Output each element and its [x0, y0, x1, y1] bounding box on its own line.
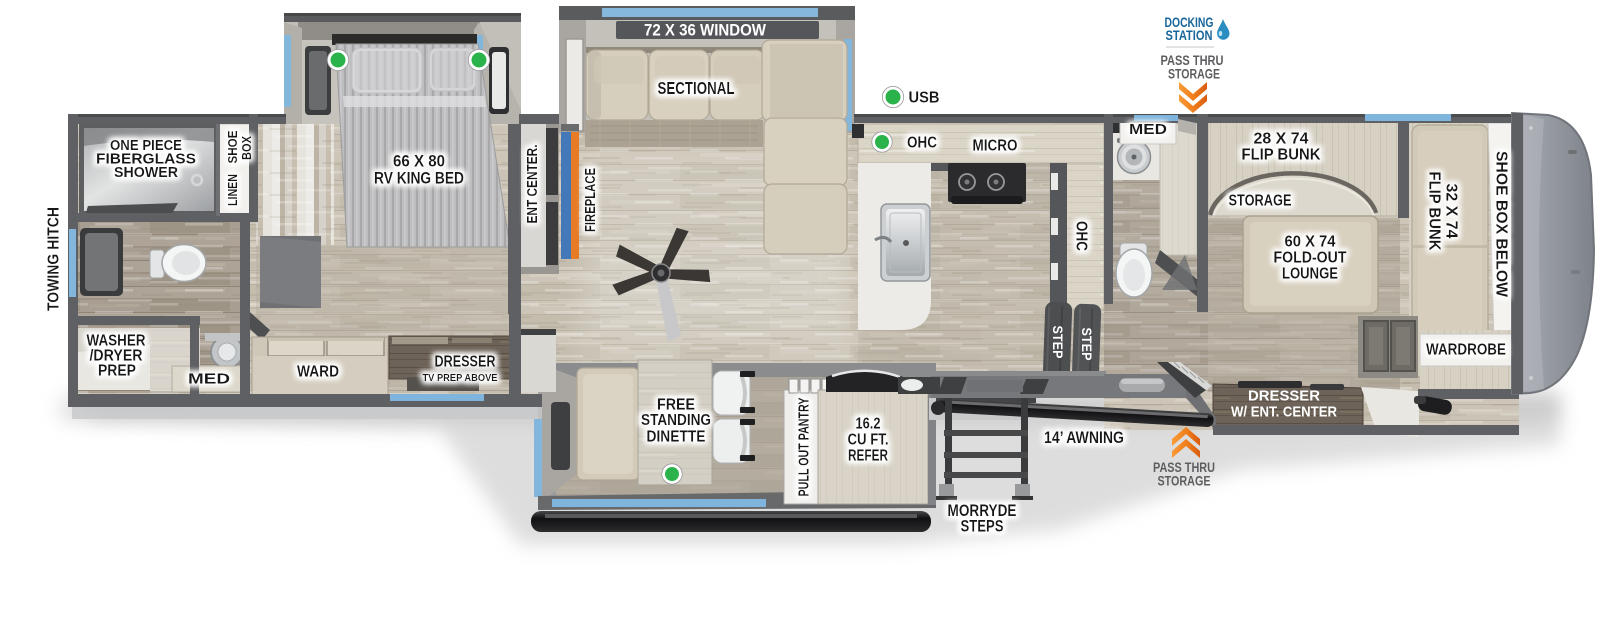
svg-text:STEP: STEP — [1050, 326, 1066, 359]
svg-text:SECTIONAL: SECTIONAL — [658, 78, 735, 98]
svg-text:DINETTE: DINETTE — [647, 429, 706, 446]
svg-text:DRESSER: DRESSER — [435, 354, 496, 371]
svg-text:PULL OUT PANTRY: PULL OUT PANTRY — [796, 398, 813, 497]
svg-text:60 X 74: 60 X 74 — [1285, 234, 1336, 251]
svg-text:72 X 36 WINDOW: 72 X 36 WINDOW — [644, 21, 767, 40]
svg-text:OHC: OHC — [1073, 221, 1090, 251]
svg-text:USB: USB — [909, 90, 940, 107]
svg-text:MED: MED — [1129, 122, 1167, 138]
svg-text:FLIP BUNK: FLIP BUNK — [1426, 172, 1443, 251]
svg-text:OHC: OHC — [907, 135, 937, 152]
svg-text:FREE: FREE — [657, 397, 695, 414]
svg-text:16.2: 16.2 — [856, 416, 881, 433]
svg-text:W/ ENT. CENTER: W/ ENT. CENTER — [1231, 404, 1337, 421]
svg-text:MED: MED — [188, 371, 230, 388]
svg-text:STEP: STEP — [1079, 328, 1095, 361]
svg-text:FLIP BUNK: FLIP BUNK — [1242, 147, 1321, 164]
svg-text:FIREPLACE: FIREPLACE — [583, 168, 599, 232]
svg-text:LOUNGE: LOUNGE — [1282, 266, 1338, 283]
svg-text:SHOE BOX BELOW: SHOE BOX BELOW — [1493, 151, 1510, 297]
svg-text:PREP: PREP — [98, 363, 136, 380]
svg-text:WARDROBE: WARDROBE — [1426, 342, 1506, 359]
svg-text:BOX: BOX — [240, 135, 254, 160]
svg-text:ENT CENTER.: ENT CENTER. — [525, 145, 541, 224]
svg-text:DRESSER: DRESSER — [1248, 388, 1320, 405]
svg-text:STATION: STATION — [1166, 28, 1213, 43]
svg-text:SHOWER: SHOWER — [114, 165, 179, 181]
svg-text:CU FT.: CU FT. — [848, 432, 889, 449]
svg-text:WARD: WARD — [297, 364, 339, 381]
svg-text:MICRO: MICRO — [973, 138, 1018, 155]
svg-text:STORAGE: STORAGE — [1229, 193, 1292, 210]
svg-text:STANDING: STANDING — [641, 412, 711, 429]
svg-text:STEPS: STEPS — [961, 518, 1004, 536]
svg-text:32 X 74: 32 X 74 — [1443, 184, 1460, 239]
svg-text:STORAGE: STORAGE — [1158, 474, 1211, 489]
svg-text:STORAGE: STORAGE — [1168, 67, 1220, 82]
svg-text:TV PREP ABOVE: TV PREP ABOVE — [423, 372, 498, 384]
svg-text:14’ AWNING: 14’ AWNING — [1044, 429, 1124, 447]
svg-text:LINEN: LINEN — [226, 174, 240, 206]
svg-text:RV KING BED: RV KING BED — [374, 169, 464, 188]
svg-text:REFER: REFER — [848, 448, 888, 465]
svg-text:FOLD-OUT: FOLD-OUT — [1274, 250, 1347, 267]
svg-text:TOWING HITCH: TOWING HITCH — [46, 207, 63, 311]
svg-text:28 X 74: 28 X 74 — [1254, 131, 1309, 148]
svg-text:SHOE: SHOE — [226, 131, 240, 164]
